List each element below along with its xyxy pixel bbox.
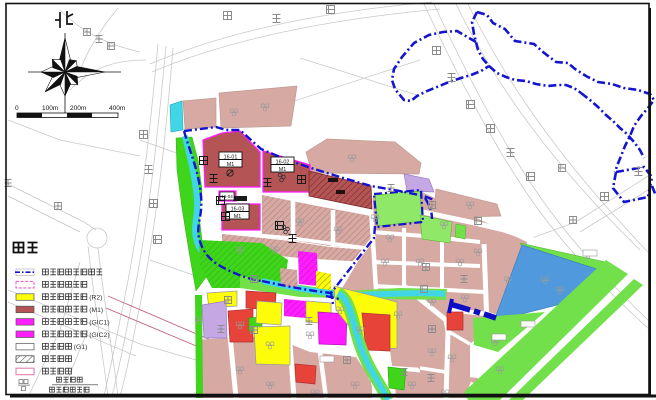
svg-text:400m: 400m bbox=[109, 105, 125, 112]
svg-text:200m: 200m bbox=[70, 105, 86, 112]
svg-text:16-02: 16-02 bbox=[276, 159, 290, 165]
svg-text:M1: M1 bbox=[234, 214, 242, 220]
svg-text:16-01: 16-01 bbox=[224, 154, 238, 160]
svg-text:(G1): (G1) bbox=[74, 344, 88, 351]
svg-text:100m: 100m bbox=[42, 105, 58, 112]
svg-text:M1: M1 bbox=[227, 162, 235, 168]
svg-text:(GIC1): (GIC1) bbox=[89, 319, 109, 326]
svg-text:16-03: 16-03 bbox=[231, 206, 245, 212]
svg-text:(M1): (M1) bbox=[89, 307, 103, 314]
svg-text:(R2): (R2) bbox=[89, 295, 102, 302]
svg-text:0: 0 bbox=[15, 105, 19, 112]
svg-text:M1: M1 bbox=[279, 167, 287, 173]
svg-text:(GIC2): (GIC2) bbox=[89, 332, 109, 339]
